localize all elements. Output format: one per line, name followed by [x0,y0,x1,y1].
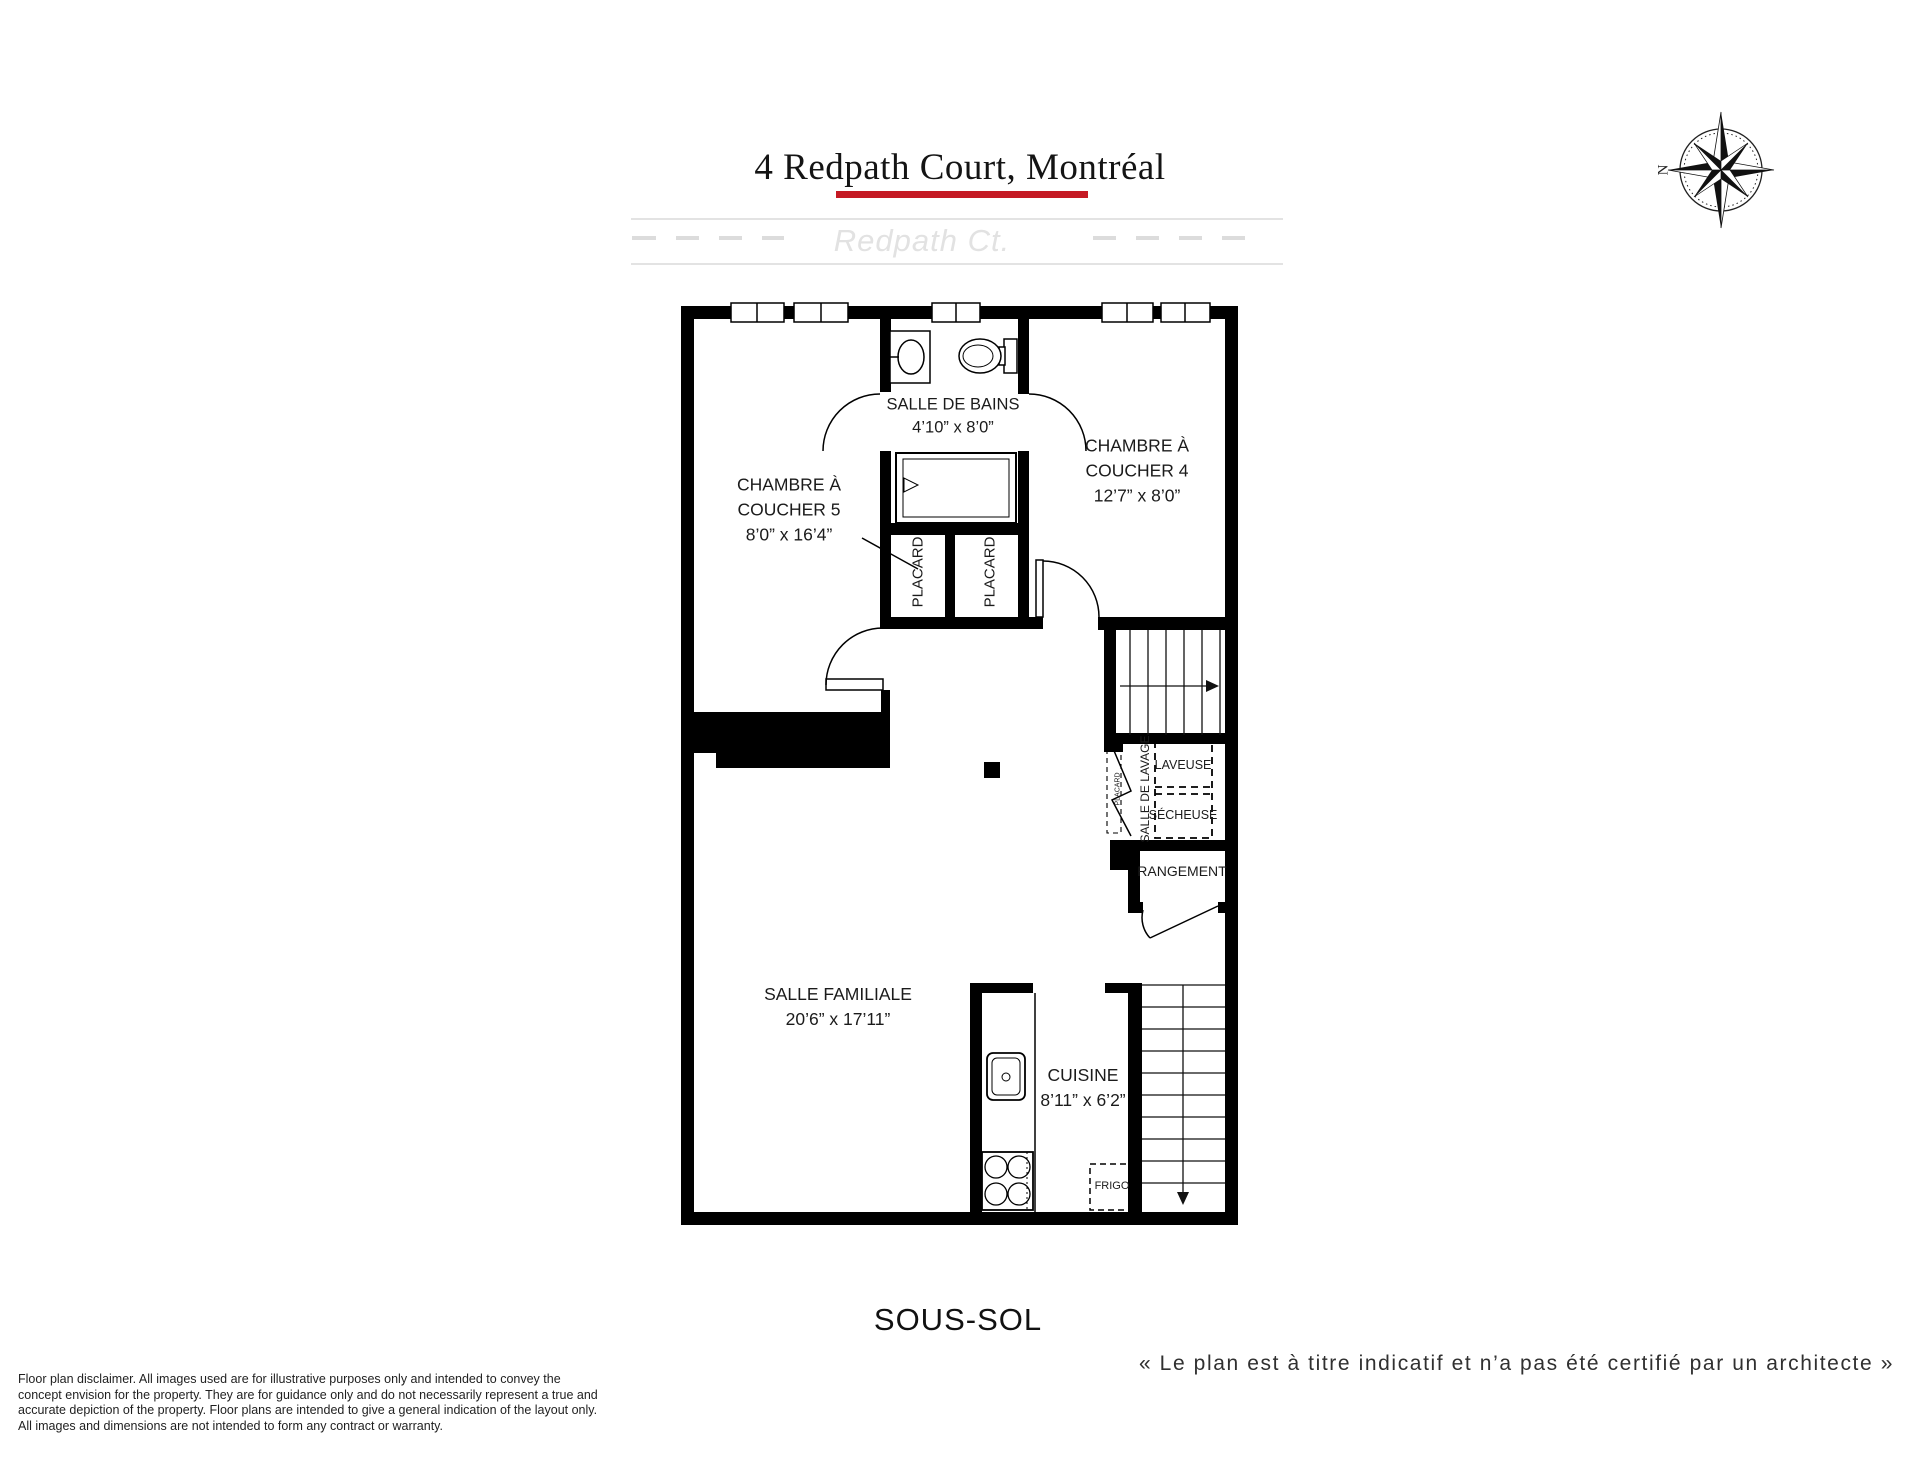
bedroom5-name-2: COUCHER 5 [737,498,841,523]
dryer-label: SÉCHEUSE [1149,807,1218,825]
bedroom5-door-sill [826,679,883,690]
page-title: 4 Redpath Court, Montréal [0,146,1920,189]
bedroom5-dims: 8’0” x 16’4” [737,522,841,547]
bathroom-dims: 4’10” x 8’0” [887,417,1020,440]
closet-left-label: PLACARD [910,537,927,608]
floor-level-label: SOUS-SOL [874,1302,1042,1338]
bedroom4-name-1: CHAMBRE À [1085,434,1189,459]
kitchen-name: CUISINE [1040,1063,1125,1088]
bedroom4-door-arc [1029,394,1086,451]
closet-right-label: PLACARD [982,537,999,608]
floorplan-page: N [0,0,1920,1483]
bedroom4-label: CHAMBRE À COUCHER 4 12’7” x 8’0” [1085,434,1189,509]
bedroom5-door-arc [826,628,883,685]
kitchen-label: CUISINE 8’11” x 6’2” [1040,1063,1125,1113]
storage-door-leaf [1150,906,1218,938]
burner [985,1183,1007,1205]
laundry-closet-label: PLACARD [1115,772,1122,805]
bedroom4-name-2: COUCHER 4 [1085,459,1189,484]
family-room-name: SALLE FAMILIALE [764,982,912,1007]
storage-label: RANGEMENT [1137,862,1226,882]
windows [731,303,1210,322]
bedroom4-dims: 12’7” x 8’0” [1085,483,1189,508]
fridge-label: FRIGO [1095,1179,1130,1195]
title-underline [836,191,1088,198]
bedroom5-label: CHAMBRE À COUCHER 5 8’0” x 16’4” [737,473,841,548]
street-name-label: Redpath Ct. [834,223,1010,259]
family-room-label: SALLE FAMILIALE 20’6” x 17’11” [764,982,912,1032]
hall-door-leaf [1036,560,1043,617]
sink-drain [1002,1073,1010,1081]
disclaimer-text: Floor plan disclaimer. All images used a… [18,1372,618,1434]
toilet-tank [1004,339,1017,373]
bathroom-name: SALLE DE BAINS [887,394,1020,417]
hall-door-arc [1043,561,1099,617]
stairs-upper [1120,630,1220,735]
sink-basin [898,340,924,374]
bathroom-label: SALLE DE BAINS 4’10” x 8’0” [887,394,1020,441]
stairs-lower [1142,985,1225,1205]
storage-door-arc [1142,910,1150,938]
laundry-room-label: SALLE DE LAVAGE [1138,736,1152,843]
toilet-bowl-inner [963,345,993,367]
burner [985,1156,1007,1178]
bathroom-door-arc [823,394,880,451]
washer-label: LAVEUSE [1155,757,1212,775]
kitchen-dims: 8’11” x 6’2” [1040,1088,1125,1113]
stove [982,1152,1033,1210]
bedroom5-name-1: CHAMBRE À [737,473,841,498]
bathtub-inner [903,459,1009,517]
family-room-dims: 20’6” x 17’11” [764,1007,912,1032]
architect-note: « Le plan est à titre indicatif et n’a p… [1139,1352,1894,1376]
